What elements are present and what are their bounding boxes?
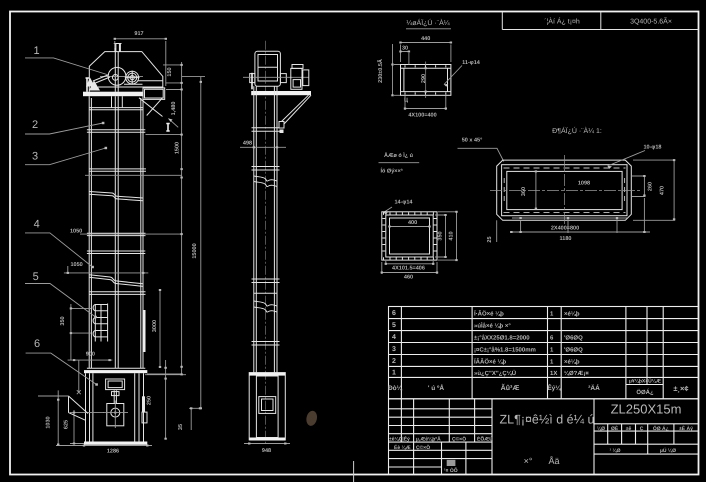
svg-text:30: 30 xyxy=(402,46,408,52)
svg-text:15000: 15000 xyxy=(192,243,198,258)
svg-text:10-φ18: 10-φ18 xyxy=(643,145,661,151)
svg-text:2: 2 xyxy=(32,119,38,131)
svg-text:ÏÂÂÖ×é ¼þ: ÏÂÂÖ×é ¼þ xyxy=(473,358,507,366)
svg-text:1X: 1X xyxy=(550,370,557,377)
svg-text:3000: 3000 xyxy=(152,320,158,332)
svg-text:400: 400 xyxy=(408,220,417,226)
svg-text:±¡°åXX25Ø1.8=2000: ±¡°åXX25Ø1.8=2000 xyxy=(474,335,530,342)
svg-text:1: 1 xyxy=(392,370,396,377)
svg-text:1286: 1286 xyxy=(107,449,119,455)
svg-text:Éè ¼Æ: Éè ¼Æ xyxy=(394,444,411,451)
svg-text:Åä: Åä xyxy=(548,456,559,466)
svg-text:1050: 1050 xyxy=(71,262,83,268)
svg-text:ÈÕÆÚ: ÈÕÆÚ xyxy=(477,436,493,443)
svg-text:470: 470 xyxy=(660,186,666,195)
svg-text:4X101.5=406: 4X101.5=406 xyxy=(392,266,425,272)
svg-text:Ðò¼: Ðò¼ xyxy=(388,385,403,392)
svg-text:Ç©×Ö: Ç©×Ö xyxy=(416,444,430,451)
svg-text:¼Ø: ¼Ø xyxy=(597,426,605,432)
svg-text:900: 900 xyxy=(86,352,95,358)
svg-text:460: 460 xyxy=(404,275,413,281)
svg-text:µÚ ¼Ø: µÚ ¼Ø xyxy=(660,447,676,454)
svg-text:50 x 45°: 50 x 45° xyxy=(462,138,483,144)
svg-text:'Ø6ØQ: 'Ø6ØQ xyxy=(564,335,583,342)
svg-text:5: 5 xyxy=(392,322,396,329)
svg-text:×é¼þ: ×é¼þ xyxy=(564,311,580,318)
svg-text:2X400=800: 2X400=800 xyxy=(551,226,579,232)
svg-text:Ç: Ç xyxy=(640,426,644,432)
svg-text:1180: 1180 xyxy=(560,236,572,242)
svg-text:×é¼þ: ×é¼þ xyxy=(564,359,580,366)
svg-text:ØÈ: ØÈ xyxy=(611,425,619,432)
svg-text:3: 3 xyxy=(392,346,396,353)
svg-text:'Ø6ØQ: 'Ø6ØQ xyxy=(564,347,583,354)
svg-text:ÖØ Á¿: ÖØ Á¿ xyxy=(653,425,669,432)
svg-text:290: 290 xyxy=(421,74,427,83)
svg-text:625: 625 xyxy=(64,420,70,429)
svg-text:1098: 1098 xyxy=(578,181,590,187)
svg-text:Êý¼: Êý¼ xyxy=(547,384,561,392)
svg-text:4: 4 xyxy=(34,219,40,231)
svg-text:¡¤C±¡°å%1.8=1500mm: ¡¤C±¡°å%1.8=1500mm xyxy=(474,347,536,354)
svg-text:350: 350 xyxy=(438,231,444,240)
svg-text:498: 498 xyxy=(243,141,252,147)
svg-text:6: 6 xyxy=(392,310,396,317)
svg-text:5: 5 xyxy=(33,271,39,283)
svg-text:260: 260 xyxy=(648,182,654,191)
svg-text:ÅÆø ó Ì¿ ú: ÅÆø ó Ì¿ ú xyxy=(384,152,413,159)
svg-text:360: 360 xyxy=(521,187,527,196)
svg-text:1: 1 xyxy=(33,45,39,57)
svg-text:440: 440 xyxy=(421,36,430,42)
svg-text:6: 6 xyxy=(34,338,40,350)
svg-text:11-φ14: 11-φ14 xyxy=(462,60,481,66)
svg-text:Í·ÂÖ×é ¼þ: Í·ÂÖ×é ¼þ xyxy=(474,310,504,318)
svg-text:948: 948 xyxy=(262,448,271,454)
svg-text:´¦Àí Á¿ t¡¤h: ´¦Àí Á¿ t¡¤h xyxy=(544,17,580,26)
svg-text:ZL250X15m: ZL250X15m xyxy=(611,402,682,417)
svg-text:±ê: ±ê xyxy=(626,426,632,432)
svg-text:Íö Øý××ª: Íö Øý××ª xyxy=(381,168,404,175)
svg-text:35: 35 xyxy=(178,424,184,430)
svg-text:4: 4 xyxy=(392,334,396,341)
svg-text:¼Ø?Æ¡¤: ¼Ø?Æ¡¤ xyxy=(564,370,589,377)
svg-text:¹ ¼Ø: ¹ ¼Ø xyxy=(609,448,620,454)
svg-text:1050: 1050 xyxy=(70,229,82,235)
svg-text:»úÌå×é ¼þ ×°: »úÌå×é ¼þ ×° xyxy=(474,322,511,330)
svg-text:3: 3 xyxy=(32,151,38,163)
svg-text:25: 25 xyxy=(487,236,493,242)
svg-text:14-φ14: 14-φ14 xyxy=(394,200,413,206)
svg-text:µ¥¼þX×Ü¼Æ: µ¥¼þX×Ü¼Æ xyxy=(629,378,661,385)
svg-text:3Q400-5.6Ã×: 3Q400-5.6Ã× xyxy=(630,17,672,26)
svg-text:150: 150 xyxy=(167,67,173,76)
svg-text:250: 250 xyxy=(147,396,153,405)
svg-text:ZL¶¡¤ê½ì d é¼ ú: ZL¶¡¤ê½ì d é¼ ú xyxy=(500,413,595,427)
svg-text:1500: 1500 xyxy=(175,142,181,154)
svg-text:Ãû³Æ: Ãû³Æ xyxy=(501,383,520,392)
svg-text:¼øÁÏ¿Ú ·¨À¼: ¼øÁÏ¿Ú ·¨À¼ xyxy=(406,18,449,27)
svg-text:350: 350 xyxy=(60,316,66,325)
svg-text:2: 2 xyxy=(392,358,396,365)
svg-text:×°: ×° xyxy=(524,456,533,466)
svg-text:±È Àý: ±È Àý xyxy=(679,425,693,432)
svg-text:Ç©×Ö: Ç©×Ö xyxy=(452,436,466,443)
svg-text:µ,Æê¼þºÅ: µ,Æê¼þºÅ xyxy=(416,436,441,443)
svg-text:1030: 1030 xyxy=(45,416,51,428)
svg-text:1,480: 1,480 xyxy=(171,102,177,116)
svg-text:4X100=400: 4X100=400 xyxy=(408,113,436,119)
svg-text:410: 410 xyxy=(449,231,455,240)
svg-text:917: 917 xyxy=(134,31,143,37)
svg-text:±¸×¢: ±¸×¢ xyxy=(673,384,688,393)
svg-text:230±0.5Ã: 230±0.5Ã xyxy=(377,59,384,83)
svg-text:ÖØÁ¿: ÖØÁ¿ xyxy=(636,388,654,396)
svg-text:¹¤ ÒÕ: ¹¤ ÒÕ xyxy=(444,467,458,474)
svg-text:Ð¶ÁÏ¿Ú ·¨À¼ 1:: Ð¶ÁÏ¿Ú ·¨À¼ 1: xyxy=(552,126,602,135)
svg-text:±ê¼Ç|Êý: ±ê¼Ç|Êý xyxy=(389,436,410,443)
svg-text:' ú ºÅ: ' ú ºÅ xyxy=(428,384,445,392)
svg-text:»ù¿Ç"X"¿Ç¼Ü: »ù¿Ç"X"¿Ç¼Ü xyxy=(474,369,516,377)
svg-text:²ÄÁ: ²ÄÁ xyxy=(588,384,600,392)
